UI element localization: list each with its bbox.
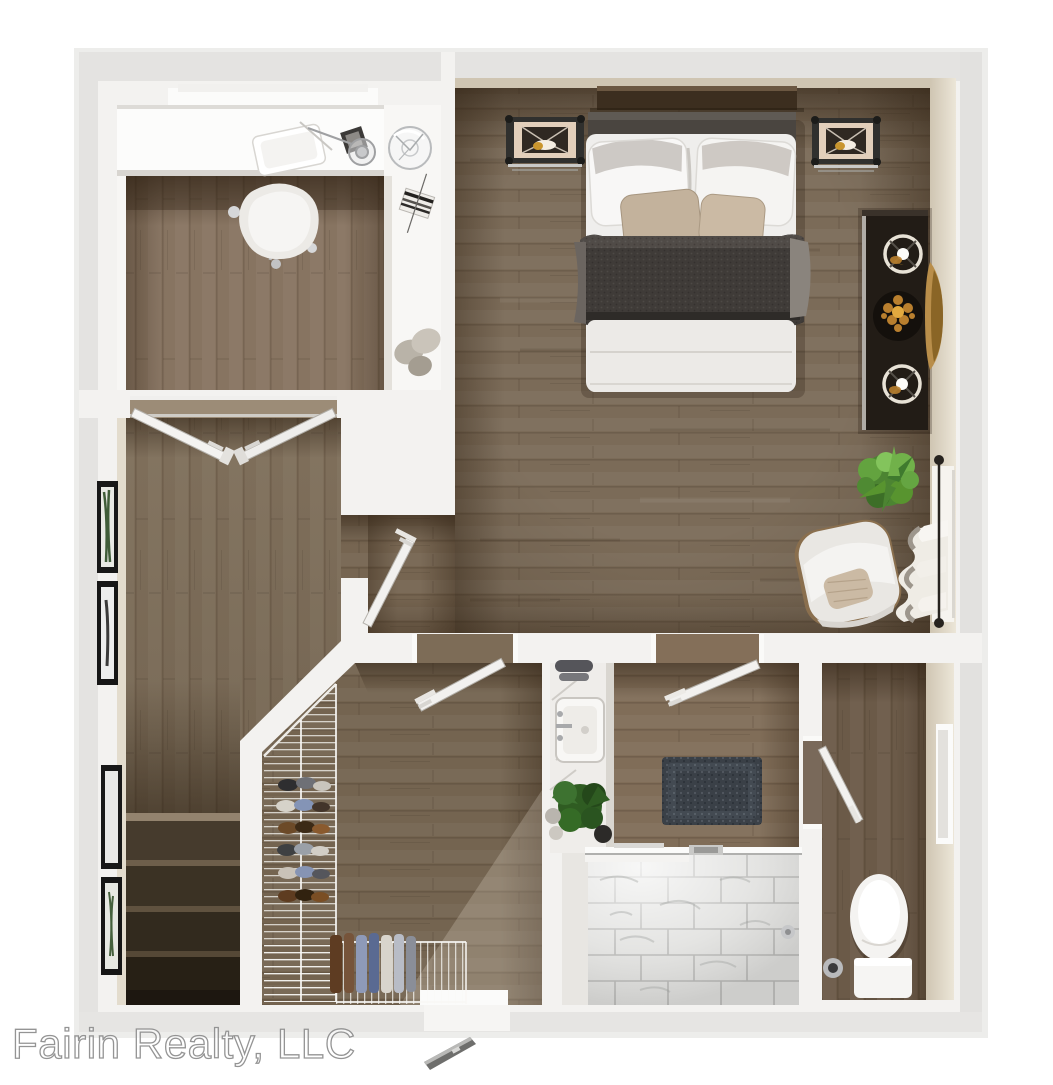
svg-text:Fairin Realty, LLC: Fairin Realty, LLC (12, 1020, 356, 1067)
